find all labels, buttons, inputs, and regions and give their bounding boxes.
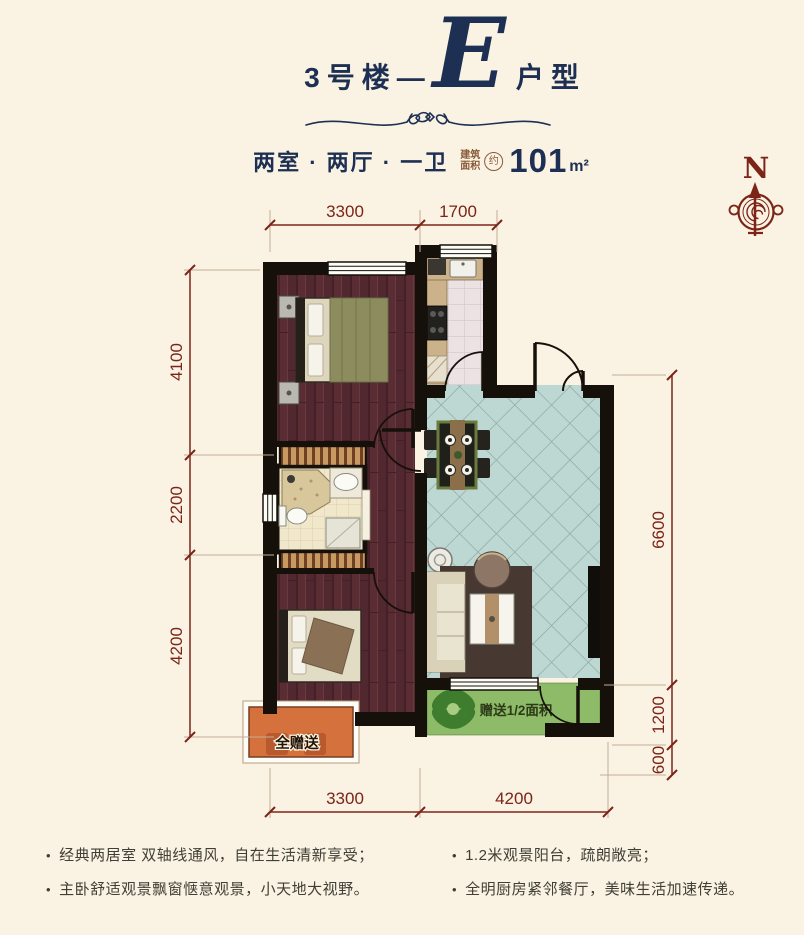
pillow [308,304,323,336]
bedroom-window [328,262,406,275]
dim-bottom-1: 3300 [326,789,364,808]
feature-list-left: • 经典两居室 双轴线通风，自在生活清新享受； • 主卧舒适观景飘窗惬意观景，小… [46,846,436,914]
gift-full-label: 全赠送 [274,734,319,752]
feature-list-right: • 1.2米观景阳台，疏朗敞亮； • 全明厨房紧邻餐厅，美味生活加速传递。 [452,846,797,914]
kitchen-window [440,245,492,258]
bullet-icon: • [46,846,51,866]
feature-text: 全明厨房紧邻餐厅，美味生活加速传递。 [465,880,744,900]
dim-right-3: 600 [649,746,668,774]
gift-area: 全赠送 [243,701,359,763]
blanket [330,298,388,382]
bathroom [277,466,370,552]
dim-right-2: 1200 [649,696,668,734]
bullet-icon: • [452,846,457,866]
toilet-bowl [287,508,307,524]
pillow [308,344,323,376]
shower-head-icon [287,475,295,483]
bullet-icon: • [452,880,457,900]
headboard [296,298,305,382]
feature-item: • 全明厨房紧邻餐厅，美味生活加速传递。 [452,880,797,900]
tv-console [588,566,600,658]
dim-top-1: 3300 [326,202,364,221]
hallway-floor [365,446,415,572]
wardrobe-top [280,446,366,466]
feature-text: 经典两居室 双轴线通风，自在生活清新享受； [59,846,374,866]
dim-left-1: 4100 [167,343,186,381]
feature-item: • 主卧舒适观景飘窗惬意观景，小天地大视野。 [46,880,436,900]
feature-text: 1.2米观景阳台，疏朗敞亮； [465,846,658,866]
toilet-tank [279,506,286,526]
bathroom-window [263,494,277,522]
north-label: N [743,151,770,185]
feature-item: • 经典两居室 双轴线通风，自在生活清新享受； [46,846,436,866]
headboard [279,610,288,682]
kitchen-appliance [428,259,446,275]
dim-top-2: 1700 [439,202,477,221]
feature-text: 主卧舒适观景飘窗惬意观景，小天地大视野。 [59,880,369,900]
dim-bottom-2: 4200 [495,789,533,808]
entry-door [535,343,583,391]
pillow [292,616,306,642]
bullet-icon: • [46,880,51,900]
balcony-window [450,678,538,690]
floorplan-page: 3号楼—E户型 两室 · 两厅 · 一卫 建筑 面积 约 101 m² [0,0,804,935]
north-compass: N [730,151,783,236]
balcony-gift-label: 赠送1/2面积 [480,702,553,718]
feature-item: • 1.2米观景阳台，疏朗敞亮； [452,846,797,866]
bathroom-door [362,490,370,540]
sink-basin [334,474,358,491]
second-bed [279,610,361,682]
stove [427,306,447,340]
dim-left-3: 4200 [167,627,186,665]
dim-left-2: 2200 [167,486,186,524]
floor-plan: 赠送1/2面积 全赠送 [0,0,804,935]
dim-right-1: 6600 [649,511,668,549]
